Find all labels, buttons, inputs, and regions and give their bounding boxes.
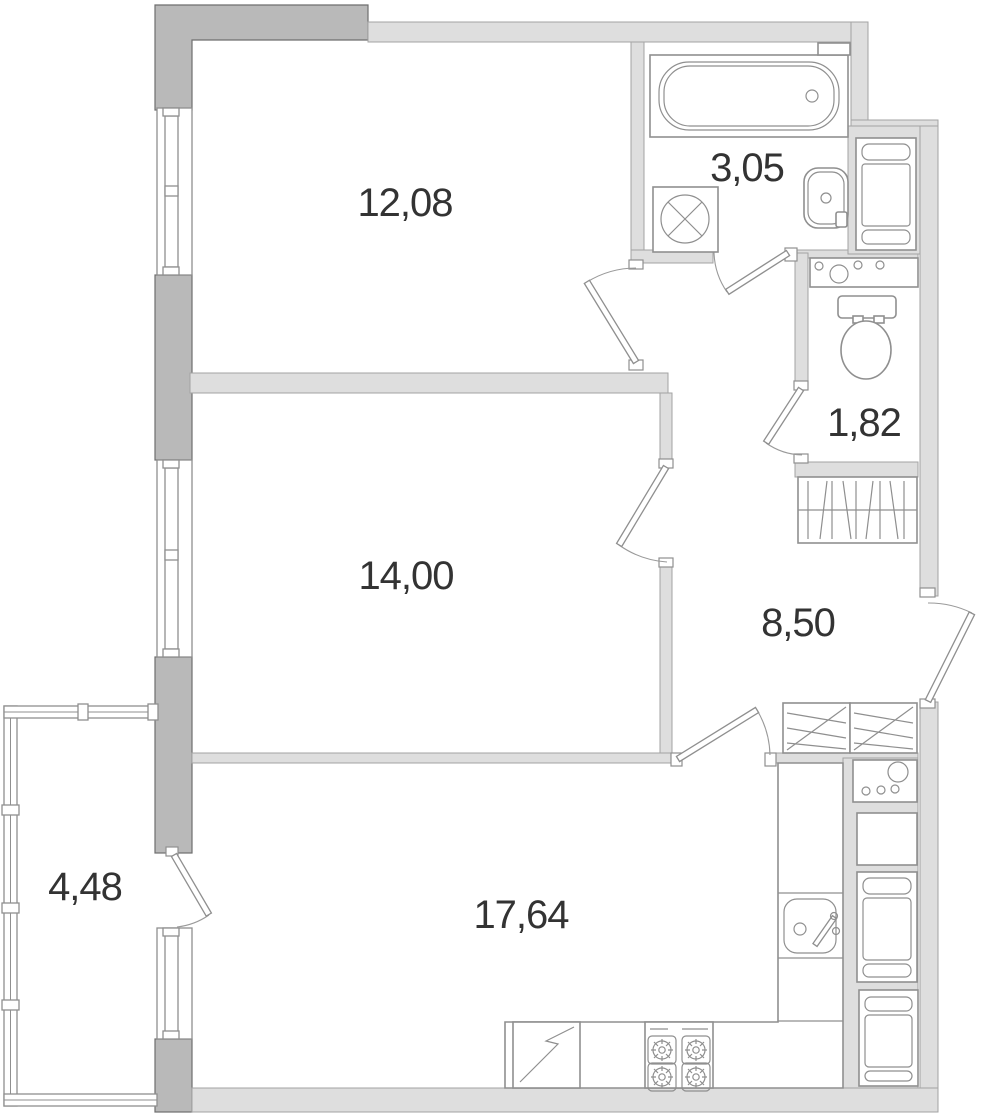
wall-top	[368, 22, 868, 42]
wardrobe-left	[783, 703, 850, 753]
wall-left-lower-dark	[155, 657, 192, 853]
room-label-wc: 1,82	[827, 401, 901, 445]
room-label-hallway: 8,50	[761, 601, 835, 645]
room-label-bedroom-1: 12,08	[357, 181, 452, 225]
bedroom-2-window	[157, 460, 192, 657]
wall-right-upper	[851, 22, 868, 123]
wall-bottom	[192, 1088, 938, 1112]
bedroom-1-window	[157, 108, 192, 275]
wall-bedroom2-right-upper	[660, 393, 672, 467]
wall-right	[920, 126, 938, 596]
refrigerator	[857, 872, 917, 982]
tall-cabinet	[859, 990, 918, 1086]
bathtub	[650, 55, 848, 137]
wall-wc-left	[795, 253, 808, 390]
wall-bathroom-left	[631, 42, 644, 258]
wardrobe-right	[850, 703, 917, 753]
wall-bedrooms-divider	[190, 373, 668, 393]
living-room-window	[157, 928, 192, 1039]
dishwasher	[513, 1022, 580, 1088]
cooktop-counter	[853, 760, 917, 802]
wall-wc-bottom	[795, 462, 918, 477]
toilet	[838, 296, 896, 379]
wall-right-lower	[920, 702, 938, 1112]
room-label-balcony: 4,48	[48, 865, 122, 909]
room-label-living-kitchen: 17,64	[473, 893, 569, 937]
bathroom-sink	[804, 168, 848, 228]
oven	[857, 813, 917, 865]
room-label-bedroom-2: 14,00	[358, 554, 453, 598]
wall-bedroom2-right-lower	[660, 562, 672, 753]
room-label-bathroom: 3,05	[710, 146, 784, 190]
stove	[645, 1022, 713, 1091]
vanity-counter	[810, 258, 918, 287]
washing-machine	[653, 187, 718, 252]
floor-plan: 12,08 3,05 1,82 14,00 8,50 17,64 4,48	[0, 0, 984, 1116]
wall-left-bottom-dark	[155, 1039, 192, 1112]
wall-left-mid-dark	[155, 275, 192, 460]
bathroom-shelf	[818, 43, 850, 55]
utility-cabinet	[856, 138, 916, 250]
hall-closet	[798, 477, 917, 543]
wall-living-divider-left	[192, 753, 677, 763]
floor-plan-canvas: 12,08 3,05 1,82 14,00 8,50 17,64 4,48	[0, 0, 984, 1116]
